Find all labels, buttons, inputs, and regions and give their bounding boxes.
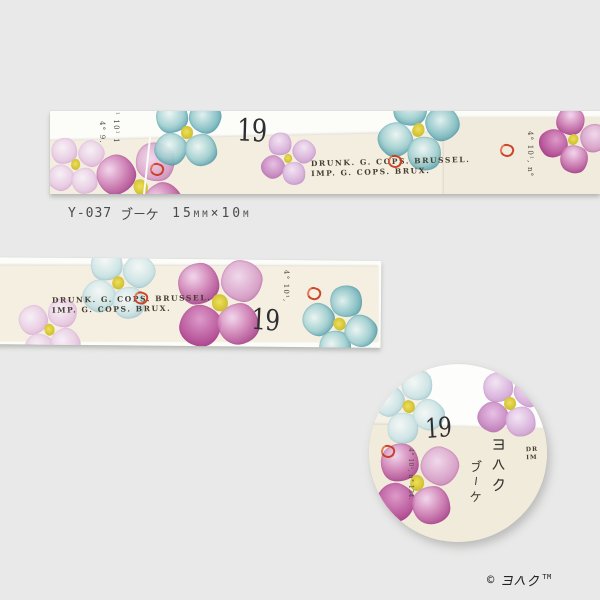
vintage-stamp-text-partial: DR IM: [526, 446, 539, 461]
vertical-print-note: 4° 10¹, n° 134.: [407, 448, 414, 500]
printed-number: 19: [250, 302, 280, 338]
washi-tape-strip-middle: DRUNK. G. COPS. BRUSSEL. IMP. G. COPS. B…: [0, 257, 381, 348]
detail-circle: 19 4° 10¹, n° 134. DR IM: [369, 364, 547, 542]
watercolor-flower: [152, 111, 222, 168]
product-name-vertical: [470, 460, 482, 502]
product-code: Y-037: [68, 206, 112, 221]
printed-number: 19: [424, 412, 452, 445]
copyright-symbol: ©: [487, 573, 494, 587]
printed-number: 19: [237, 112, 267, 149]
copyright-line: © TM: [487, 573, 552, 587]
vertical-print-note: 4° 10¹, n°: [526, 131, 534, 177]
vintage-stamp-text: DRUNK. G. COPS. BRUSSEL. IMP. G. COPS. B…: [52, 293, 212, 316]
brand-name-vertical: [491, 437, 506, 492]
product-name-japanese: [120, 207, 159, 220]
product-label: Y-037 15mm×10m: [68, 204, 252, 222]
product-photo-canvas: { "colors": { "background": "#e8e9e8", "…: [0, 0, 600, 600]
vertical-print-note: 4° 10¹,: [282, 270, 290, 303]
brand-name: [500, 574, 542, 587]
watercolor-flower: [473, 367, 547, 441]
washi-tape-strip-top: 4° 9. ¹ 10¹ 1 19 DRUNK. G. COPS. BRUSSEL…: [50, 111, 600, 194]
trademark-mark: TM: [542, 573, 551, 581]
vertical-print-note: ¹ 10¹ 1: [112, 112, 120, 144]
vertical-print-note: 4° 9.: [98, 121, 106, 144]
product-size: 15mm×10m: [172, 206, 251, 221]
